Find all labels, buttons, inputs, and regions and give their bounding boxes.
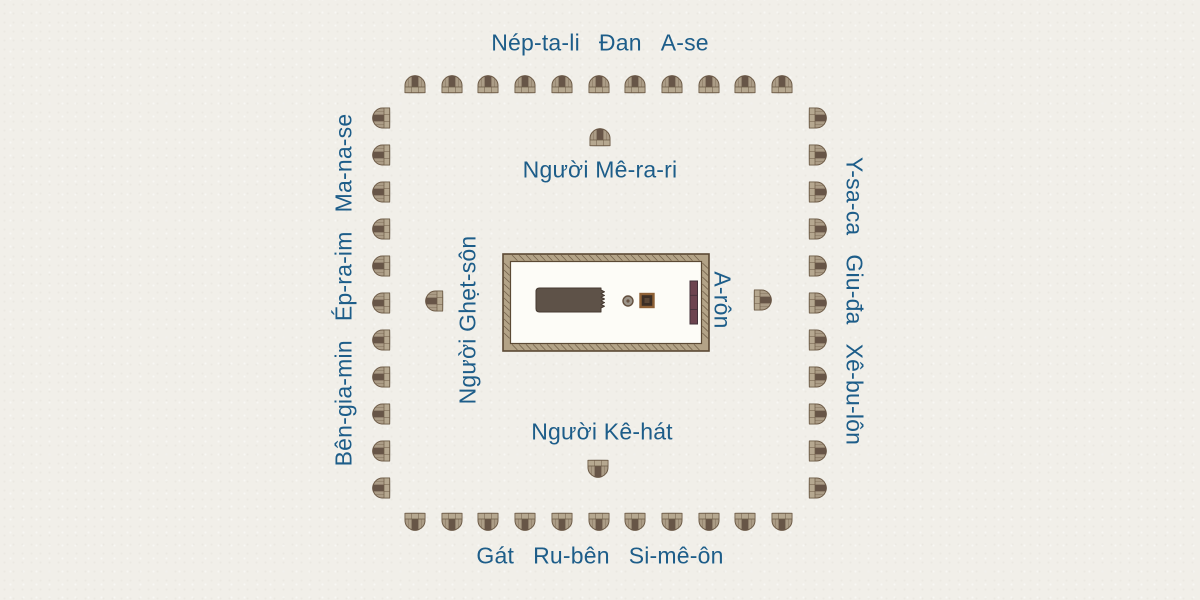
tent-icon-south [587, 512, 611, 532]
levite-name: Người Kê-hát [531, 419, 673, 446]
tent-icon-south [697, 512, 721, 532]
tent-icon-west [371, 143, 391, 167]
tent-icon-east [808, 439, 828, 463]
tribe-name: Gát [476, 543, 514, 570]
tribe-name: Si-mê-ôn [629, 543, 724, 570]
tribe-name: Ma-na-se [331, 114, 358, 213]
tent-icon-north [770, 74, 794, 94]
tent-icon-east [808, 365, 828, 389]
tent-icon-north [587, 74, 611, 94]
tribe-name: Nép-ta-li [491, 30, 580, 57]
tribe-name: Ru-bên [533, 543, 610, 570]
tent-icon-east [808, 217, 828, 241]
tent-icon-east [808, 291, 828, 315]
tent-icon-west [371, 291, 391, 315]
levite-tent-west [424, 289, 444, 313]
tent-icon-west [371, 217, 391, 241]
tribe-name: A-se [661, 30, 709, 57]
levite-name: A-rôn [709, 271, 736, 328]
tent-icon-west [371, 476, 391, 500]
west-camp-label: Bên-gia-min Ép-ra-im Ma-na-se [331, 114, 358, 467]
tent-icon-east [808, 328, 828, 352]
tent-icon-south [403, 512, 427, 532]
tent-icon-west [371, 328, 391, 352]
tent-icon-east [808, 180, 828, 204]
tent-icon-south [770, 512, 794, 532]
south-camp-label: Gát Ru-bên Si-mê-ôn [476, 543, 723, 570]
tent-icon-south [733, 512, 757, 532]
tent-icon-north [476, 74, 500, 94]
levite-label-north: Người Mê-ra-ri [523, 157, 678, 184]
tent-icon-north [403, 74, 427, 94]
tent-icon-north [440, 74, 464, 94]
north-camp-label: Nép-ta-li Đan A-se [491, 30, 709, 57]
tent-icon-north [513, 74, 537, 94]
levite-label-east: A-rôn [709, 271, 736, 328]
levite-name: Người Mê-ra-ri [523, 157, 678, 184]
tent-icon-west [371, 254, 391, 278]
levite-label-south: Người Kê-hát [531, 419, 673, 446]
tent-icon-west [371, 106, 391, 130]
levite-label-west: Người Ghẹt-sôn [455, 236, 482, 405]
tent-icon-north [623, 74, 647, 94]
tent-of-meeting [536, 288, 605, 312]
levite-tent-east [753, 288, 773, 312]
tent-icon-east [808, 254, 828, 278]
tent-icon-south [476, 512, 500, 532]
tent-icon-south [623, 512, 647, 532]
levite-tent-north [588, 127, 612, 147]
tent-icon-north [660, 74, 684, 94]
tent-icon-west [371, 365, 391, 389]
tent-icon-east [808, 476, 828, 500]
entrance-screen [690, 281, 698, 324]
camp-diagram: Nép-ta-li Đan A-se Gát Ru-bên Si-mê-ôn B… [0, 0, 1200, 600]
tent-icon-south [550, 512, 574, 532]
tent-icon-north [733, 74, 757, 94]
tent-icon-west [371, 180, 391, 204]
tribe-name: Giu-đa [841, 254, 868, 324]
levite-name: Người Ghẹt-sôn [455, 236, 482, 405]
tent-icon-south [513, 512, 537, 532]
altar-center [645, 298, 650, 303]
tribe-name: Y-sa-ca [841, 157, 868, 236]
levite-tent-south [586, 459, 610, 479]
tent-icon-west [371, 439, 391, 463]
tent-icon-east [808, 106, 828, 130]
tent-icon-south [440, 512, 464, 532]
tribe-name: Xê-bu-lôn [841, 344, 868, 446]
laver-center [626, 299, 629, 302]
tent-icon-east [808, 402, 828, 426]
tent-icon-west [371, 402, 391, 426]
tent-icon-east [808, 143, 828, 167]
tribe-name: Bên-gia-min [331, 340, 358, 466]
tent-icon-north [550, 74, 574, 94]
tent-icon-south [660, 512, 684, 532]
tribe-name: Đan [599, 30, 642, 57]
tribe-name: Ép-ra-im [331, 231, 358, 321]
tent-icon-north [697, 74, 721, 94]
tabernacle [502, 253, 710, 352]
east-camp-label: Y-sa-ca Giu-đa Xê-bu-lôn [841, 157, 868, 445]
